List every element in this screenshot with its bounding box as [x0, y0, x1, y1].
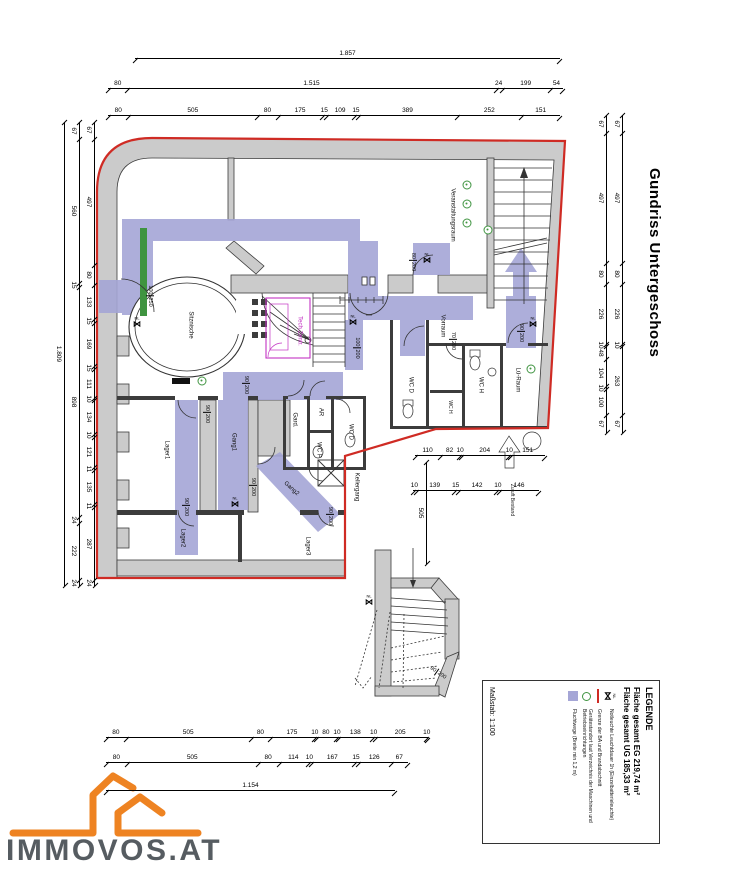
logo-text: IMMOVOS.AT	[6, 834, 222, 868]
dimension-chain-right-2: 67497802261026367	[610, 115, 623, 433]
door-dimension-label: 100200	[353, 337, 361, 358]
door-dimension-label: 90200	[242, 376, 250, 394]
door-dimension-label: 100250	[146, 285, 154, 306]
boundary-line-icon	[597, 687, 599, 705]
dimension-value: 48	[597, 349, 604, 356]
dimension-value: 67	[396, 755, 403, 762]
dimension-chain-interior-1: 110821020410151	[415, 443, 545, 456]
dimension-value: 505	[417, 508, 424, 519]
dimension-value: 67	[613, 421, 620, 428]
device-location-icon	[198, 377, 207, 386]
room-label: WC D	[347, 424, 354, 440]
dimension-value: 505	[187, 755, 198, 762]
legend-item-label: Fluchtwege (Breite min 1,2 m)	[570, 709, 576, 776]
room-label: Lager2	[179, 529, 186, 548]
legend-item: Gerätestandort laut Verzeichnis der Masc…	[581, 687, 593, 837]
escape-route-icon	[568, 687, 578, 705]
dimension-chain-top-1: 1.857	[135, 46, 560, 59]
dimension-value: 226	[613, 309, 620, 320]
dimension-value: 80	[115, 108, 122, 115]
room-label: Zuluft Bestand	[508, 484, 514, 516]
dimension-value: 389	[402, 108, 413, 115]
dimension-value: 80	[85, 272, 92, 279]
dimension-value: 135	[85, 482, 92, 493]
tech-room	[266, 298, 310, 358]
room-label: Gard.	[291, 412, 298, 427]
dimension-value: 1.515	[303, 81, 319, 88]
dimension-value: 222	[70, 546, 77, 557]
legend-item: Grenze der BA und Brandabschnitt	[595, 687, 601, 837]
dimension-value: 133	[85, 297, 92, 308]
room-label: Kellergang	[353, 473, 360, 502]
dimension-value: 121	[85, 447, 92, 458]
dimension-value: 24	[85, 579, 92, 586]
legend-item: Fluchtwege (Breite min 1,2 m)	[568, 687, 578, 837]
dimension-chain-interior-2: 101391514210146	[413, 478, 539, 491]
dimension-value: 134	[85, 412, 92, 423]
dimension-value: 80	[114, 81, 121, 88]
door-dimension-label: 90200	[203, 405, 211, 423]
dimension-value: 252	[484, 108, 495, 115]
device-location-icon	[484, 226, 493, 235]
dimension-value: 80	[597, 270, 604, 277]
emergency-light-icon: NL⋈	[604, 687, 616, 705]
dimension-value: 109	[335, 108, 346, 115]
door-dimension-label: 90200	[182, 498, 190, 516]
room-label: WC H	[446, 400, 452, 413]
dimension-value: 505	[183, 730, 194, 737]
dimension-value: 167	[327, 755, 338, 762]
escape-routes	[99, 219, 537, 555]
dimension-value: 67	[85, 127, 92, 134]
dimension-value: 104	[597, 367, 604, 378]
dimension-value: 67	[613, 120, 620, 127]
room-label: WC D	[407, 377, 414, 393]
dimension-value: 80	[322, 730, 329, 737]
room-label: Lü-Raum	[514, 368, 521, 393]
dimension-chain-interior-3: 505	[414, 462, 427, 564]
dimension-chain-bottom-3: 1.154	[106, 778, 395, 791]
dimension-value: 67	[597, 421, 604, 428]
dimension-value: 126	[369, 755, 380, 762]
dimension-value: 560	[70, 206, 77, 217]
dimension-value: 80	[265, 755, 272, 762]
dimension-value: 505	[187, 108, 198, 115]
dimension-value: 151	[535, 108, 546, 115]
dimension-value: 287	[85, 538, 92, 549]
dimension-value: 898	[70, 396, 77, 407]
dimension-value: 110	[422, 448, 432, 455]
dimension-chain-left-3: 6749780133151691511110134101211113511287…	[82, 122, 95, 586]
device-location-icon	[582, 687, 591, 705]
legend-items: NL⋈Notleuchte Leuchtdauer 1h (Einzelbatt…	[568, 687, 616, 837]
legend-box: LEGENDE Fläche gesamt EG 219,74 m² Fläch…	[482, 680, 660, 844]
device-location-icon	[463, 181, 472, 190]
emergency-light-icon: NL⋈	[349, 314, 357, 325]
dimension-value: 497	[597, 193, 604, 204]
room-label: Vorraum	[439, 315, 446, 338]
dimension-chain-bottom-2: 8050580114101671512667	[106, 750, 408, 763]
dimension-value: 80	[264, 108, 271, 115]
legend-item: NL⋈Notleuchte Leuchtdauer 1h (Einzelbatt…	[604, 687, 616, 837]
dimension-chain-top-2: 801.5152419954	[108, 76, 563, 89]
legend-scale: Maßstab: 1:100	[488, 687, 495, 837]
emergency-light-icon: NL⋈	[133, 316, 141, 327]
emergency-light-icon: NL⋈	[423, 252, 431, 263]
room-label: Lager3	[304, 537, 311, 556]
dimension-value: 1.154	[242, 783, 258, 790]
room-label: WC P	[315, 442, 322, 458]
legend-item-label: Grenze der BA und Brandabschnitt	[595, 709, 601, 786]
dimension-value: 146	[514, 483, 525, 490]
dimension-value: 175	[295, 108, 306, 115]
dimension-value: 142	[472, 483, 483, 490]
door-dimension-label: 90200	[249, 478, 257, 496]
dimension-chain-left-2: 67560158982422224	[67, 122, 80, 586]
legend-heading: LEGENDE	[644, 687, 654, 837]
dimension-chain-bottom-1: 80505801751080101381020510	[106, 725, 428, 738]
dimension-value: 67	[70, 127, 77, 134]
dimension-value: 54	[553, 81, 560, 88]
room-label: Tech.Zentr.	[296, 316, 303, 346]
dimension-value: 111	[85, 379, 92, 389]
dimension-value: 205	[395, 730, 406, 737]
room-label: Gang1	[230, 433, 237, 451]
dimension-value: 100	[597, 397, 604, 408]
dimension-value: 1.809	[55, 346, 62, 362]
dimension-value: 204	[479, 448, 490, 455]
floor-plan-page: 1.857 801.5152419954 8050580175151091538…	[0, 0, 729, 871]
dimension-value: 10	[423, 730, 430, 737]
dimension-value: 199	[520, 81, 531, 88]
dimension-value: 80	[257, 730, 264, 737]
dimension-value: 80	[112, 730, 119, 737]
page-title: Gundriss Untergeschoss	[646, 168, 663, 357]
dimension-value: 263	[613, 375, 620, 386]
emergency-light-icon: NL⋈	[231, 496, 239, 507]
dimension-value: 138	[350, 730, 361, 737]
dimension-value: 67	[597, 120, 604, 127]
legend-area-ug: Fläche gesamt UG 185,33 m²	[621, 687, 631, 837]
door-dimension-label: 90200	[326, 507, 334, 525]
door-dimension-label: 70200	[449, 332, 457, 350]
device-location-icon	[463, 219, 472, 228]
device-location-icon	[527, 365, 536, 374]
dimension-value: 24	[70, 579, 77, 586]
dimension-value: 80	[113, 755, 120, 762]
legend-area-eg: Fläche gesamt EG 219,74 m²	[631, 687, 641, 837]
door-dimension-label: 80200	[409, 253, 417, 271]
room-label: Veranstaltungsraum	[449, 188, 456, 241]
dimension-value: 80	[613, 270, 620, 277]
dimension-value: 151	[522, 448, 533, 455]
room-label: Lager1	[163, 441, 170, 460]
dimension-value: 497	[613, 192, 620, 203]
legend-item-label: Gerätestandort laut Verzeichnis der Masc…	[581, 709, 593, 837]
dimension-chain-top-3: 80505801751510915389252151	[108, 103, 560, 116]
dimension-value: 114	[288, 755, 298, 762]
room-label: AR	[317, 408, 324, 416]
door-dimension-label: 90200	[517, 324, 525, 342]
dimension-chain-left-1: 1.809	[52, 122, 65, 586]
dimension-value: 139	[429, 483, 440, 490]
dimension-value: 1.857	[339, 51, 355, 58]
room-label: WC H	[477, 377, 484, 393]
dimension-value: 226	[597, 309, 604, 320]
dimension-value: 169	[85, 339, 92, 350]
dimension-chain-right-1: 674978022610481041010067	[594, 115, 607, 433]
dimension-value: 82	[446, 448, 453, 455]
dimension-value: 497	[85, 197, 92, 208]
dimension-value: 175	[287, 730, 298, 737]
legend-item-label: Notleuchte Leuchtdauer 1h (Einzelbatteri…	[607, 709, 613, 820]
emergency-light-icon: NL⋈	[529, 316, 537, 327]
device-location-icon	[463, 200, 472, 209]
room-label: Sitznische	[187, 311, 194, 338]
emergency-light-icon: NL⋈	[365, 594, 373, 605]
